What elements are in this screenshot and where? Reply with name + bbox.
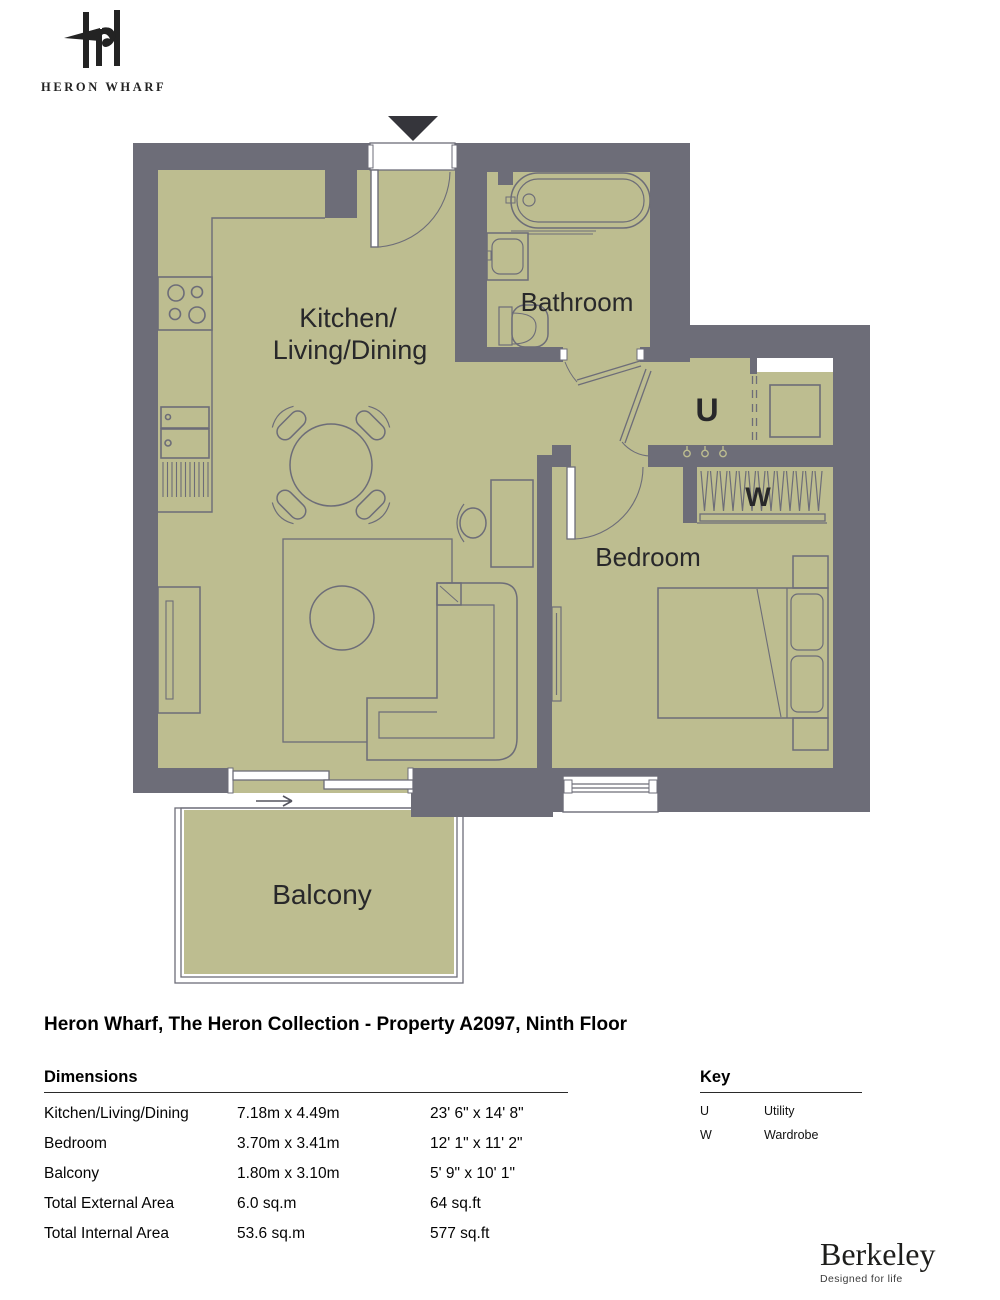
dim-imperial: 12' 1" x 11' 2" <box>430 1135 568 1153</box>
dimensions-row: Bedroom 3.70m x 3.41m 12' 1" x 11' 2" <box>44 1129 568 1159</box>
dim-metric: 3.70m x 3.41m <box>237 1135 430 1153</box>
dim-label: Kitchen/Living/Dining <box>44 1105 237 1123</box>
dim-metric: 7.18m x 4.49m <box>237 1105 430 1123</box>
dim-label: Bedroom <box>44 1135 237 1153</box>
dim-label: Total External Area <box>44 1195 237 1213</box>
floor-hallway <box>552 362 650 457</box>
berkeley-tagline: Designed for life <box>820 1273 936 1285</box>
room-label-balcony: Balcony <box>272 879 372 910</box>
room-label-kitchen-line2: Living/Dining <box>273 335 428 365</box>
bedroom-window <box>563 776 658 812</box>
berkeley-logo: Berkeley Designed for life <box>820 1238 936 1285</box>
entrance-arrow-icon <box>388 116 438 141</box>
dim-imperial: 5' 9" x 10' 1" <box>430 1165 568 1183</box>
floor-areas <box>158 167 833 974</box>
page-title: Heron Wharf, The Heron Collection - Prop… <box>44 1014 627 1036</box>
dimensions-row: Balcony 1.80m x 3.10m 5' 9" x 10' 1" <box>44 1159 568 1189</box>
room-label-wardrobe: W <box>745 482 771 512</box>
berkeley-wordmark: Berkeley <box>820 1238 936 1272</box>
dimensions-row: Kitchen/Living/Dining 7.18m x 4.49m 23' … <box>44 1099 568 1129</box>
slide-direction-arrow-icon <box>256 796 292 806</box>
room-label-bathroom: Bathroom <box>521 287 634 317</box>
key-abbr: U <box>700 1104 764 1118</box>
key-abbr: W <box>700 1128 764 1142</box>
key-section: Key U Utility W Wardrobe <box>700 1068 862 1147</box>
bathtub-icon <box>506 173 650 234</box>
dim-imperial: 23' 6" x 14' 8" <box>430 1105 568 1123</box>
dimensions-heading: Dimensions <box>44 1068 568 1093</box>
basin-icon <box>484 233 528 280</box>
dim-label: Total Internal Area <box>44 1225 237 1243</box>
dim-label: Balcony <box>44 1165 237 1183</box>
room-label-bedroom: Bedroom <box>595 542 701 572</box>
room-label-utility: U <box>695 392 718 428</box>
coffee-table-icon <box>310 586 374 650</box>
entrance-opening <box>370 143 455 170</box>
dimensions-row: Total Internal Area 53.6 sq.m 577 sq.ft <box>44 1219 568 1249</box>
dimensions-section: Dimensions Kitchen/Living/Dining 7.18m x… <box>44 1068 568 1249</box>
key-heading: Key <box>700 1068 862 1093</box>
room-label-kitchen-line1: Kitchen/ <box>299 303 397 333</box>
dim-metric: 6.0 sq.m <box>237 1195 430 1213</box>
floor-plan: Kitchen/ Living/Dining Bathroom U W Bedr… <box>0 0 1000 1010</box>
dim-imperial: 64 sq.ft <box>430 1195 568 1213</box>
dim-metric: 1.80m x 3.10m <box>237 1165 430 1183</box>
key-label: Utility <box>764 1104 862 1118</box>
dining-table-icon <box>290 424 372 506</box>
dim-imperial: 577 sq.ft <box>430 1225 568 1243</box>
hob-icon <box>158 277 212 330</box>
key-label: Wardrobe <box>764 1128 862 1142</box>
bed-icon <box>658 588 828 718</box>
bedroom-door-opening <box>571 445 648 467</box>
key-row: U Utility <box>700 1099 862 1123</box>
key-row: W Wardrobe <box>700 1123 862 1147</box>
dim-metric: 53.6 sq.m <box>237 1225 430 1243</box>
dimensions-row: Total External Area 6.0 sq.m 64 sq.ft <box>44 1189 568 1219</box>
floor-utility-nook <box>757 372 833 446</box>
brochure-page: { "logo": { "wordmark": "HERON WHARF" },… <box>0 0 1000 1300</box>
